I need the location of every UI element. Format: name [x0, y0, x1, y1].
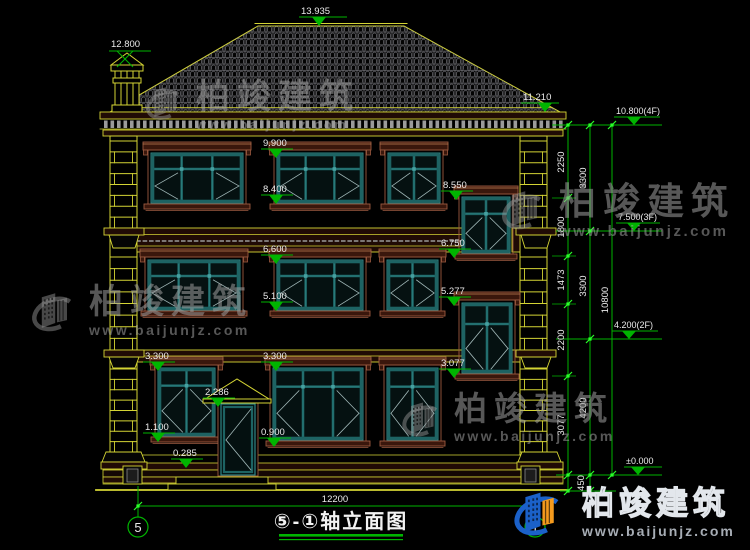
dentil-row: [104, 121, 563, 129]
hip-roof: [110, 24, 560, 113]
dim-3300-lower: 3300: [578, 275, 589, 296]
level-marker-zero: ±0.000: [624, 456, 662, 475]
mark-3300-mid: 3.300: [263, 351, 287, 362]
mark-5277: 5.277: [441, 286, 465, 297]
window: [379, 357, 446, 448]
mark-1100: 1.100: [145, 422, 169, 433]
mark-8400: 8.400: [263, 184, 287, 195]
axis-5-label: 5: [134, 520, 141, 535]
level-marker-4f: 10.800(4F): [614, 106, 660, 125]
mark-3300-left: 3.300: [145, 351, 169, 362]
level-2f-label: 4.200(2F): [614, 320, 653, 330]
dim-3077: 3077: [556, 414, 567, 435]
window: [269, 249, 371, 318]
mark-0285: 0.285: [173, 448, 197, 459]
chimney-label: 12.800: [111, 39, 140, 50]
window: [269, 142, 371, 211]
eave-label: 11.210: [523, 92, 551, 103]
dim-3300-upper: 3300: [578, 167, 589, 188]
window: [380, 142, 448, 211]
level-4f-label: 10.800(4F): [616, 106, 660, 116]
level-3f-label: 7.500(3F): [618, 212, 657, 222]
entry-door: [218, 402, 258, 476]
axis-bubble-1: 1: [525, 517, 545, 537]
building-linework: [96, 24, 568, 491]
mark-6750: 6.750: [441, 238, 465, 249]
level-marker-2f: 4.200(2F): [612, 320, 658, 339]
dim-10800: 10800: [600, 287, 611, 313]
mark-8550: 8.550: [443, 180, 467, 191]
mark-5100: 5.100: [263, 291, 287, 302]
dim-2200: 2200: [556, 329, 567, 350]
eave-cornice: [100, 112, 566, 136]
dim-450: 450: [576, 475, 587, 491]
level-marker-3f: 7.500(3F): [616, 212, 660, 231]
window: [379, 249, 446, 318]
window: [143, 142, 251, 211]
cad-elevation-drawing: 13.935 12.800 11.210 10.800(4F) 7.500(3F…: [0, 0, 750, 550]
level-zero-label: ±0.000: [626, 456, 653, 466]
dim-1800: 1800: [556, 216, 567, 237]
plinth: [96, 455, 568, 490]
axis-1-label: 1: [531, 520, 538, 535]
dim-4200: 4200: [578, 397, 589, 418]
drawing-title: ⑤-①轴立面图: [274, 509, 409, 540]
elevation-canvas: 13.935 12.800 11.210 10.800(4F) 7.500(3F…: [0, 0, 750, 550]
chimney: [111, 53, 143, 112]
mark-9900: 9.900: [263, 138, 287, 149]
entry-porch: [168, 477, 276, 490]
axis-bubble-5: 5: [128, 517, 148, 537]
ridge-label: 13.935: [301, 6, 330, 17]
mark-0900: 0.900: [261, 427, 285, 438]
mark-2286: 2.286: [205, 387, 229, 398]
window: [140, 249, 248, 318]
dim-2250: 2250: [556, 151, 567, 172]
mark-6600: 6.600: [263, 244, 287, 255]
dim-1473: 1473: [556, 269, 567, 290]
dim-total-width: 12200: [322, 494, 348, 505]
title-text: ⑤-①轴立面图: [274, 509, 409, 533]
mark-3077: 3.077: [441, 358, 465, 369]
